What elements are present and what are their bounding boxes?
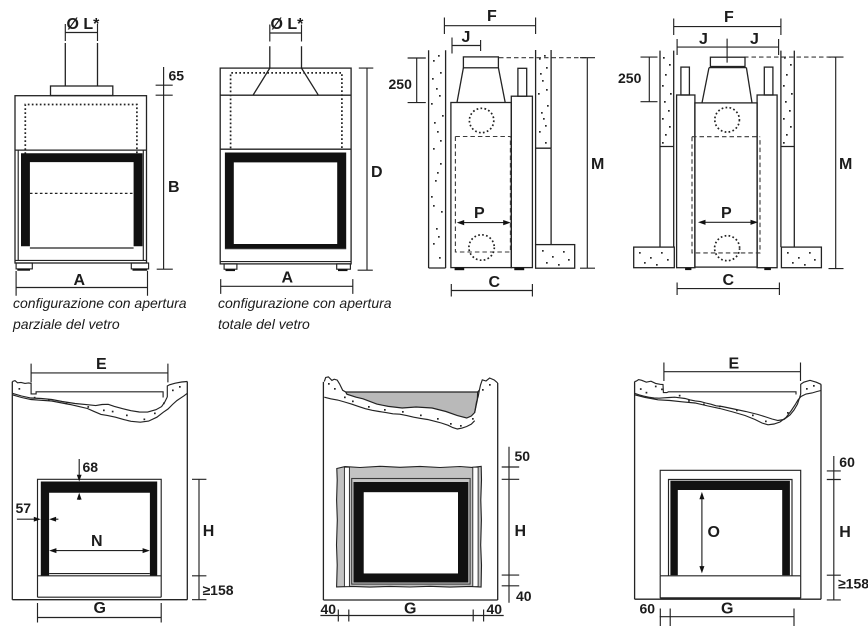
svg-text:configurazione con apertura: configurazione con apertura xyxy=(13,295,187,311)
svg-text:F: F xyxy=(724,9,734,26)
svg-text:40: 40 xyxy=(487,601,503,617)
svg-text:J: J xyxy=(462,29,471,46)
svg-text:≥158: ≥158 xyxy=(838,576,868,592)
svg-text:68: 68 xyxy=(83,459,99,475)
svg-text:250: 250 xyxy=(618,70,642,86)
svg-text:E: E xyxy=(729,356,740,373)
svg-text:E: E xyxy=(96,356,107,373)
svg-text:P: P xyxy=(474,205,485,222)
svg-text:40: 40 xyxy=(516,588,532,604)
svg-text:Ø L*: Ø L* xyxy=(67,16,101,33)
svg-text:65: 65 xyxy=(169,68,185,84)
svg-text:configurazione con apertura: configurazione con apertura xyxy=(218,295,392,311)
svg-text:60: 60 xyxy=(839,454,855,470)
svg-text:H: H xyxy=(515,523,527,540)
svg-text:M: M xyxy=(839,156,852,173)
svg-text:H: H xyxy=(839,524,851,541)
svg-text:G: G xyxy=(721,601,733,618)
svg-text:H: H xyxy=(203,523,215,540)
svg-text:G: G xyxy=(404,601,416,618)
svg-text:M: M xyxy=(591,156,604,173)
svg-text:57: 57 xyxy=(16,500,32,516)
svg-text:C: C xyxy=(489,274,501,291)
svg-text:A: A xyxy=(282,270,294,287)
svg-text:N: N xyxy=(91,533,103,550)
svg-text:O: O xyxy=(708,524,720,541)
svg-text:G: G xyxy=(94,600,106,617)
svg-text:60: 60 xyxy=(640,601,656,617)
svg-text:C: C xyxy=(723,272,735,289)
svg-text:D: D xyxy=(371,164,383,181)
svg-text:totale del vetro: totale del vetro xyxy=(218,316,310,332)
svg-text:40: 40 xyxy=(321,601,337,617)
svg-text:F: F xyxy=(487,8,497,25)
svg-text:A: A xyxy=(74,272,86,289)
svg-text:P: P xyxy=(721,205,732,222)
svg-text:J: J xyxy=(750,31,759,48)
svg-text:50: 50 xyxy=(515,448,531,464)
svg-text:250: 250 xyxy=(389,76,413,92)
svg-text:B: B xyxy=(168,179,180,196)
svg-text:J: J xyxy=(699,31,708,48)
svg-text:Ø L*: Ø L* xyxy=(271,16,305,33)
svg-text:parziale del vetro: parziale del vetro xyxy=(12,316,120,332)
svg-text:≥158: ≥158 xyxy=(203,582,234,598)
